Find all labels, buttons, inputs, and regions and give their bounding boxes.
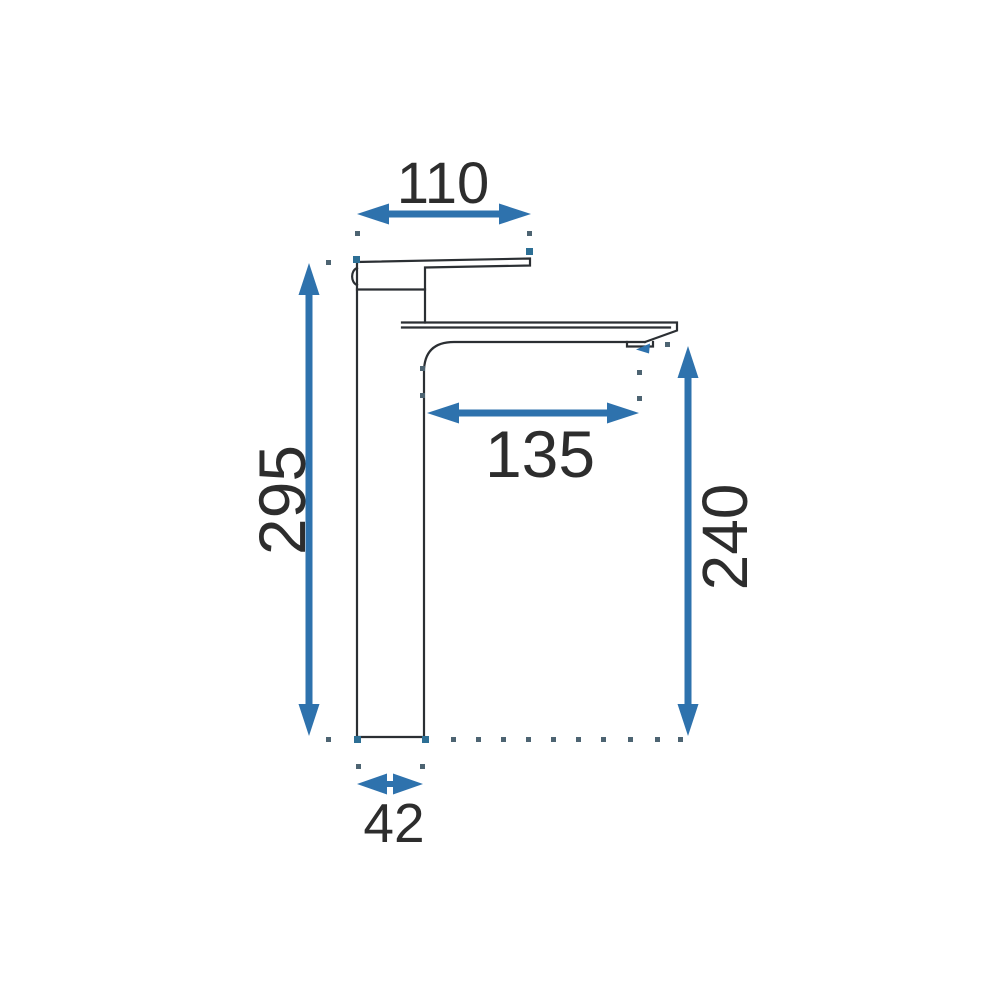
dimension-110-arrowhead-left [357,204,389,225]
dimension-295-arrowhead-top [299,263,320,295]
extension-dot [420,366,425,371]
extension-dot [637,396,642,401]
corner-marker [526,248,533,255]
extension-dot [678,737,683,742]
dimension-42: 42 [357,774,425,855]
dimension-295: 295 [245,263,320,736]
extension-dot [501,737,506,742]
dimension-135-arrowhead-left [427,403,459,424]
extension-dot [576,737,581,742]
extension-dot [655,737,660,742]
extension-dot [665,342,670,347]
dimension-135: 135 [427,403,639,492]
corner-marker [422,736,429,743]
dimension-110-arrowhead-right [499,204,531,225]
extension-dots [326,231,683,769]
faucet-spout-deck [402,323,677,343]
extension-dot [476,737,481,742]
extension-dot [420,764,425,769]
dimension-240: 240 [678,346,762,736]
extension-dot [355,231,360,236]
dimension-135-arrowhead-right [607,403,639,424]
dimension-label-135: 135 [485,417,595,491]
dimension-240-arrowhead-top [678,346,699,378]
faucet-outline [352,259,677,738]
dimension-295-arrowhead-bottom [299,704,320,736]
extension-dot [628,737,633,742]
drawing-canvas: 110 295 135 240 42 [0,0,1000,1000]
faucet-dimension-diagram: 110 295 135 240 42 [0,0,1000,1000]
dimension-label-110: 110 [397,151,489,216]
extension-dot [451,737,456,742]
dimension-label-240: 240 [689,484,761,591]
extension-dot [356,764,361,769]
extension-dot [326,260,331,265]
extension-dot [551,737,556,742]
extension-dot [527,231,532,236]
extension-dot [526,737,531,742]
extension-dot [637,370,642,375]
water-flow-arrow [636,344,650,354]
extension-dot [326,737,331,742]
corner-marker [354,736,361,743]
dimension-label-42: 42 [363,792,424,854]
dimension-240-arrowhead-bottom [678,704,699,736]
dimension-110: 110 [357,151,531,225]
extension-dot [601,737,606,742]
faucet-body-right-edge-spout-underside [424,342,645,737]
extension-dot [420,393,425,398]
corner-marker [353,256,360,263]
dimension-label-295: 295 [245,445,319,555]
